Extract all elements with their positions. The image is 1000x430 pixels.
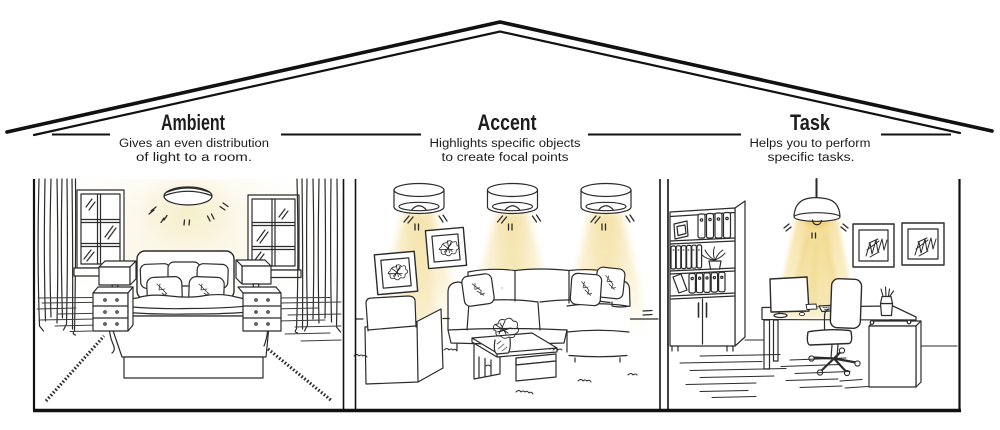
svg-text:Highlights specific objects: Highlights specific objects [430,138,581,150]
svg-text:Helps you to perform: Helps you to perform [750,138,871,150]
svg-text:of light to a room.: of light to a room. [136,152,252,164]
svg-text:Accent: Accent [478,110,538,135]
svg-text:Task: Task [790,110,831,135]
svg-text:to create focal points: to create focal points [442,152,569,164]
svg-text:Ambient: Ambient [161,110,225,135]
svg-text:Gives an even distribution: Gives an even distribution [119,138,269,150]
svg-text:specific tasks.: specific tasks. [768,152,855,164]
